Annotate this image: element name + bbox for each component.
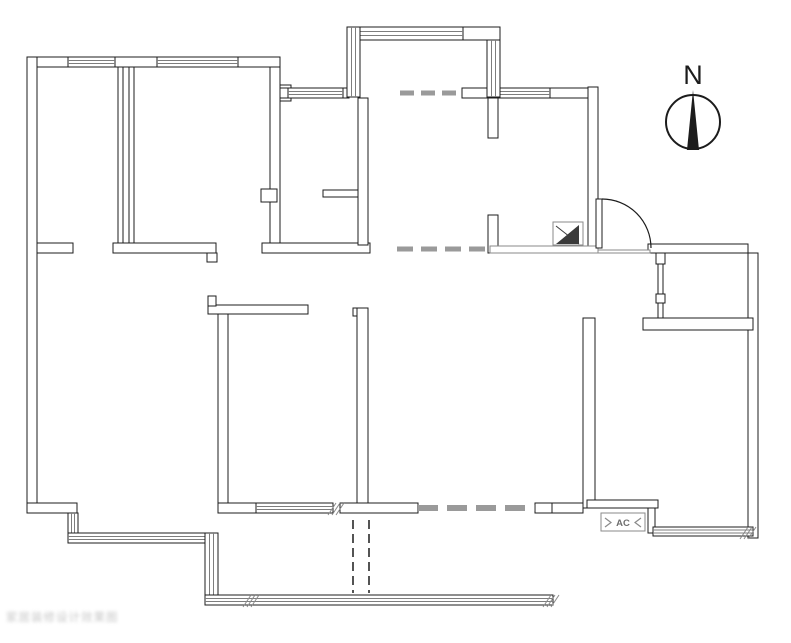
wall — [37, 243, 73, 253]
window — [487, 40, 500, 97]
wall — [218, 503, 256, 513]
wall — [463, 27, 500, 40]
wall — [535, 503, 552, 513]
window — [347, 27, 360, 97]
window — [256, 503, 333, 513]
wall — [323, 190, 358, 197]
wall — [552, 503, 583, 513]
door-leaf — [596, 199, 602, 248]
wall-gray — [598, 250, 650, 253]
wall — [27, 503, 77, 513]
wall — [113, 243, 216, 253]
window — [347, 27, 463, 40]
floor-plan-drawing: NAC — [0, 0, 791, 643]
wall — [587, 500, 658, 508]
watermark: 家居装修设计效果图 — [6, 609, 119, 625]
wall — [270, 67, 280, 253]
wall — [118, 67, 123, 243]
wall — [357, 308, 368, 513]
compass-needle — [687, 90, 699, 150]
wall — [748, 253, 758, 538]
wall — [648, 244, 748, 253]
wall — [656, 253, 665, 264]
wall — [218, 313, 228, 503]
window — [157, 57, 238, 67]
window — [288, 88, 343, 98]
wall — [129, 67, 134, 243]
window — [68, 533, 208, 543]
wall — [643, 318, 753, 330]
wall-gray — [490, 246, 598, 253]
wall — [208, 296, 216, 306]
window — [68, 57, 115, 67]
wall — [462, 88, 487, 98]
window — [653, 527, 753, 536]
floor-plan-page: NAC 家居装修设计效果图 — [0, 0, 791, 643]
door-swing-arc — [602, 199, 651, 248]
window — [205, 595, 553, 605]
wall — [656, 294, 665, 303]
wall — [340, 503, 418, 513]
window — [205, 533, 218, 595]
wall — [207, 253, 217, 262]
wall — [27, 57, 37, 513]
north-label: N — [683, 60, 703, 90]
wall — [262, 243, 370, 253]
wall — [27, 57, 280, 67]
wall — [358, 98, 368, 245]
wall — [488, 98, 498, 138]
ac-label: AC — [616, 518, 630, 529]
wall — [261, 189, 277, 202]
window — [500, 88, 550, 98]
wall — [583, 318, 595, 508]
wall — [208, 305, 308, 314]
wall — [280, 88, 288, 98]
